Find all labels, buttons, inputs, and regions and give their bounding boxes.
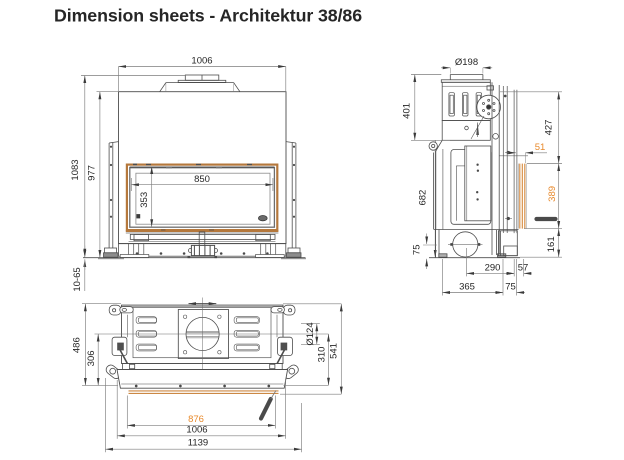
svg-text:1006: 1006 bbox=[186, 424, 207, 435]
svg-text:682: 682 bbox=[418, 190, 429, 206]
svg-text:310: 310 bbox=[316, 347, 327, 363]
svg-text:486: 486 bbox=[71, 337, 82, 353]
svg-text:365: 365 bbox=[459, 282, 475, 293]
svg-text:850: 850 bbox=[194, 174, 210, 185]
svg-text:10-65: 10-65 bbox=[72, 267, 83, 291]
svg-text:Ø198: Ø198 bbox=[455, 57, 478, 68]
svg-text:427: 427 bbox=[544, 120, 555, 136]
svg-text:161: 161 bbox=[546, 236, 557, 252]
svg-text:1006: 1006 bbox=[191, 56, 212, 67]
svg-text:401: 401 bbox=[402, 103, 413, 119]
svg-text:1083: 1083 bbox=[70, 159, 81, 180]
svg-text:51: 51 bbox=[535, 142, 546, 153]
svg-text:57: 57 bbox=[518, 263, 529, 274]
svg-text:389: 389 bbox=[547, 186, 558, 202]
svg-text:75: 75 bbox=[412, 245, 423, 256]
svg-text:541: 541 bbox=[328, 343, 339, 359]
svg-text:Ø124: Ø124 bbox=[305, 322, 316, 345]
svg-text:75: 75 bbox=[505, 282, 516, 293]
svg-text:306: 306 bbox=[86, 350, 97, 366]
svg-text:290: 290 bbox=[485, 263, 501, 274]
svg-text:353: 353 bbox=[139, 192, 150, 208]
svg-text:Dimension sheets - Architektur: Dimension sheets - Architektur 38/86 bbox=[54, 6, 362, 26]
svg-text:977: 977 bbox=[86, 165, 97, 181]
svg-text:1139: 1139 bbox=[188, 438, 208, 449]
